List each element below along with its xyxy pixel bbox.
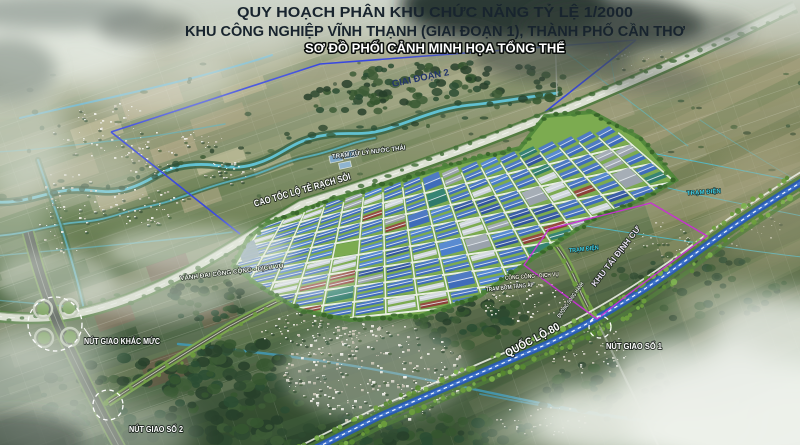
svg-text:NÚT GIAO SỐ 2: NÚT GIAO SỐ 2 [129,423,183,434]
svg-text:SƠ ĐỒ PHỐI CẢNH MINH HỌA TỔNG: SƠ ĐỒ PHỐI CẢNH MINH HỌA TỔNG THỂ [305,41,565,56]
svg-text:QUY HOẠCH PHÂN KHU CHỨC NĂNG T: QUY HOẠCH PHÂN KHU CHỨC NĂNG TỶ LỆ 1/200… [237,3,633,21]
svg-text:NÚT GIAO SỐ 1: NÚT GIAO SỐ 1 [606,340,662,351]
svg-text:NÚT GIAO KHÁC MỨC: NÚT GIAO KHÁC MỨC [84,335,160,346]
svg-text:KHU CÔNG NGHIỆP VĨNH THẠNH (GI: KHU CÔNG NGHIỆP VĨNH THẠNH (GIAI ĐOẠN 1)… [185,22,685,40]
